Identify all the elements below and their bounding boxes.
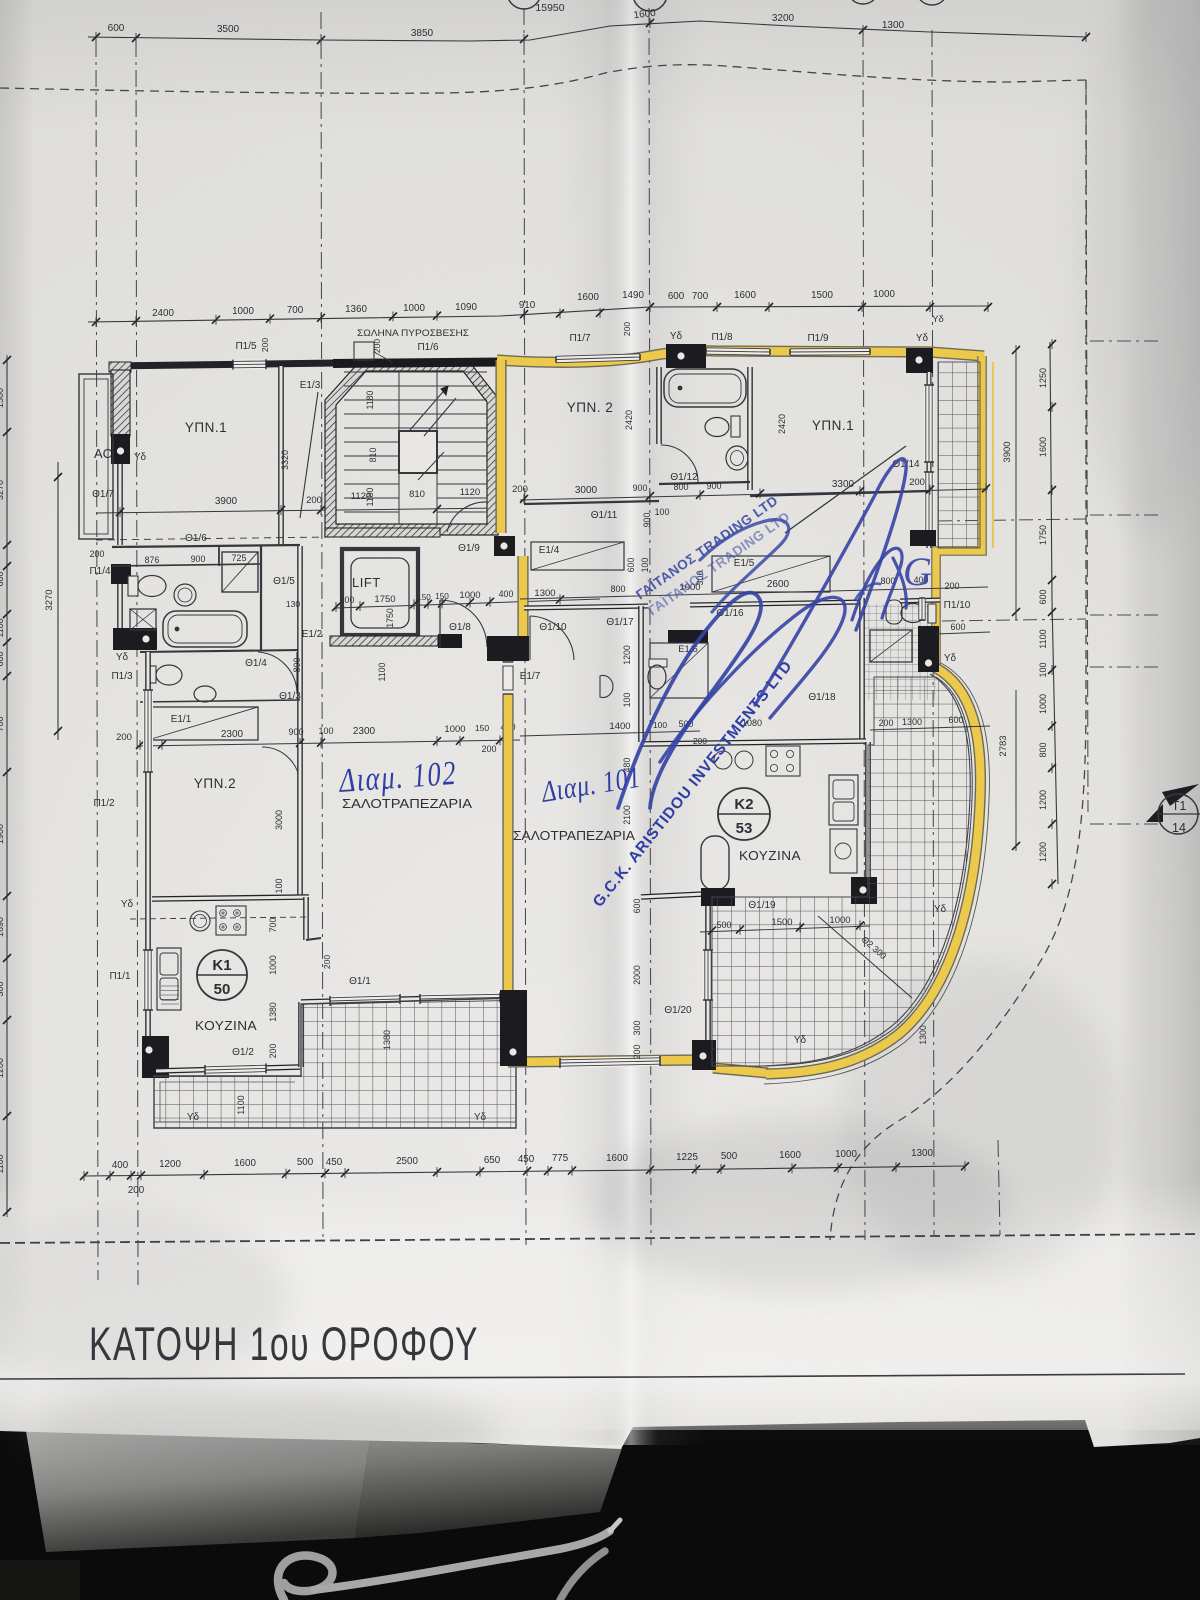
svg-text:1500: 1500	[811, 290, 833, 301]
svg-text:3200: 3200	[772, 13, 795, 24]
svg-text:1180: 1180	[365, 390, 375, 409]
svg-text:1000: 1000	[835, 1149, 857, 1160]
svg-text:200: 200	[879, 718, 894, 728]
svg-text:Υδ: Υδ	[932, 314, 944, 325]
svg-text:1100: 1100	[0, 1154, 5, 1173]
svg-text:1600: 1600	[734, 290, 756, 301]
svg-text:Θ1/2: Θ1/2	[232, 1047, 254, 1058]
svg-text:15950: 15950	[535, 2, 564, 14]
svg-text:200: 200	[622, 322, 632, 336]
svg-text:ΥΠΝ. 2: ΥΠΝ. 2	[567, 400, 614, 415]
svg-text:1100: 1100	[0, 618, 5, 637]
svg-text:1120: 1120	[460, 487, 480, 498]
svg-text:600: 600	[632, 899, 642, 914]
svg-text:1225: 1225	[676, 1152, 698, 1163]
svg-text:200: 200	[372, 339, 382, 353]
svg-text:1000: 1000	[232, 306, 254, 317]
svg-text:1600: 1600	[606, 1153, 628, 1164]
svg-text:2100: 2100	[622, 805, 632, 825]
svg-text:1600: 1600	[234, 1158, 256, 1169]
svg-text:3270: 3270	[0, 480, 5, 500]
svg-text:1500: 1500	[0, 388, 5, 408]
svg-text:3000: 3000	[575, 485, 598, 496]
svg-text:200: 200	[909, 477, 925, 488]
svg-text:Θ1/3: Θ1/3	[279, 691, 301, 702]
svg-text:Π1/3: Π1/3	[111, 671, 133, 682]
svg-text:1900: 1900	[0, 824, 5, 844]
svg-text:900: 900	[191, 554, 206, 564]
svg-text:Θ1/4: Θ1/4	[245, 658, 267, 669]
svg-text:3300: 3300	[832, 479, 855, 490]
svg-text:1500: 1500	[771, 917, 792, 928]
svg-text:2300: 2300	[221, 729, 244, 740]
svg-text:450: 450	[326, 1157, 343, 1168]
svg-text:53: 53	[736, 820, 753, 837]
svg-text:3500: 3500	[217, 24, 240, 35]
svg-text:150: 150	[417, 593, 431, 602]
svg-text:700: 700	[692, 291, 709, 302]
svg-text:Π1/2: Π1/2	[93, 798, 115, 809]
svg-text:600: 600	[0, 571, 5, 586]
svg-text:Θ1/20: Θ1/20	[664, 1005, 692, 1016]
svg-text:G: G	[903, 549, 932, 594]
svg-text:600: 600	[948, 715, 963, 725]
svg-text:Υδ: Υδ	[134, 452, 147, 463]
svg-text:800: 800	[673, 482, 688, 492]
svg-text:600: 600	[0, 651, 5, 666]
svg-text:1360: 1360	[345, 304, 367, 315]
svg-text:400: 400	[499, 589, 514, 599]
svg-text:450: 450	[518, 1154, 535, 1165]
svg-text:1200: 1200	[622, 645, 632, 665]
svg-text:200: 200	[268, 1044, 278, 1059]
svg-text:200: 200	[632, 1045, 642, 1060]
svg-text:Υδ: Υδ	[934, 904, 947, 915]
svg-text:1750: 1750	[374, 594, 395, 605]
svg-text:Θ1/9: Θ1/9	[458, 543, 480, 554]
svg-text:300: 300	[632, 1021, 642, 1036]
svg-text:1600: 1600	[577, 292, 599, 303]
svg-text:Π1/6: Π1/6	[417, 342, 439, 353]
svg-text:600: 600	[1038, 589, 1048, 604]
svg-text:150: 150	[475, 723, 490, 733]
svg-text:200: 200	[128, 1185, 145, 1196]
svg-text:ΚΟΥΖΙΝΑ: ΚΟΥΖΙΝΑ	[195, 1018, 257, 1033]
svg-text:1000: 1000	[829, 915, 850, 926]
svg-text:700: 700	[0, 716, 5, 731]
svg-text:ΚΟΥΖΙΝΑ: ΚΟΥΖΙΝΑ	[739, 848, 801, 863]
svg-text:3320: 3320	[280, 450, 290, 470]
svg-text:1100: 1100	[377, 662, 387, 681]
svg-text:ΥΠΝ.1: ΥΠΝ.1	[812, 418, 854, 433]
svg-text:650: 650	[484, 1155, 501, 1166]
svg-text:Τ1: Τ1	[1172, 799, 1187, 813]
svg-text:800: 800	[1038, 742, 1048, 757]
svg-text:Υδ: Υδ	[474, 1112, 487, 1123]
svg-text:Π1/8: Π1/8	[711, 332, 733, 343]
svg-text:1300: 1300	[911, 1148, 933, 1159]
svg-text:Κ1: Κ1	[212, 957, 231, 974]
svg-text:2600: 2600	[767, 579, 790, 590]
svg-text:500: 500	[716, 920, 731, 930]
svg-text:Υδ: Υδ	[944, 653, 957, 664]
svg-text:200: 200	[693, 736, 707, 746]
svg-text:500: 500	[721, 1151, 738, 1162]
svg-text:700: 700	[268, 918, 278, 933]
svg-text:400: 400	[112, 1160, 129, 1171]
svg-text:200: 200	[944, 581, 959, 591]
svg-text:775: 775	[552, 1153, 569, 1164]
svg-text:700: 700	[287, 305, 304, 316]
svg-text:200: 200	[90, 549, 105, 559]
svg-text:Π1/1: Π1/1	[109, 971, 131, 982]
svg-text:1180: 1180	[365, 487, 375, 506]
svg-text:1250: 1250	[1038, 368, 1048, 388]
svg-text:200: 200	[306, 495, 322, 506]
svg-text:200: 200	[116, 732, 132, 743]
svg-text:200: 200	[322, 955, 332, 969]
svg-text:1750: 1750	[1038, 525, 1048, 545]
svg-text:14: 14	[1172, 821, 1186, 835]
svg-text:900: 900	[642, 513, 652, 528]
svg-text:2420: 2420	[777, 414, 787, 434]
svg-text:1600: 1600	[779, 1150, 801, 1161]
svg-text:Υδ: Υδ	[670, 331, 683, 342]
svg-text:3900: 3900	[215, 496, 238, 507]
svg-text:2420: 2420	[624, 410, 634, 430]
svg-text:Υδ: Υδ	[916, 333, 929, 344]
svg-text:ΚΑΤΟΨΗ 1ου ΟΡΟΦΟΥ: ΚΑΤΟΨΗ 1ου ΟΡΟΦΟΥ	[89, 1317, 479, 1370]
svg-text:1090: 1090	[455, 302, 477, 313]
svg-text:Θ1/19: Θ1/19	[748, 900, 776, 911]
svg-text:3000: 3000	[274, 810, 284, 830]
svg-text:800: 800	[610, 584, 625, 594]
svg-text:Π1/4: Π1/4	[89, 566, 111, 577]
svg-text:600: 600	[668, 291, 685, 302]
svg-text:Ε1/3: Ε1/3	[300, 380, 321, 391]
svg-text:1380: 1380	[268, 1002, 278, 1022]
svg-text:Ε1/4: Ε1/4	[539, 545, 560, 556]
svg-text:Θ1/18: Θ1/18	[808, 692, 836, 703]
svg-text:ΣΩΛΗΝΑ ΠΥΡΟΣΒΕΣΗΣ: ΣΩΛΗΝΑ ΠΥΡΟΣΒΕΣΗΣ	[357, 328, 469, 338]
svg-text:2500: 2500	[396, 1156, 418, 1167]
svg-text:50: 50	[214, 981, 231, 998]
svg-text:200: 200	[512, 484, 528, 495]
svg-text:1200: 1200	[0, 1058, 5, 1078]
svg-text:910: 910	[519, 300, 536, 311]
svg-text:1000: 1000	[873, 289, 895, 300]
svg-text:AC: AC	[94, 446, 112, 461]
svg-text:Ε1/7: Ε1/7	[520, 671, 541, 682]
svg-text:1000: 1000	[459, 590, 480, 601]
svg-text:Π1/7: Π1/7	[569, 333, 591, 344]
svg-text:Θ1/5: Θ1/5	[273, 576, 295, 587]
svg-text:Θ1/1: Θ1/1	[349, 976, 371, 987]
svg-text:Υδ: Υδ	[121, 899, 134, 910]
svg-text:Ε1/2: Ε1/2	[302, 629, 323, 640]
svg-text:3270: 3270	[44, 589, 55, 610]
svg-text:1490: 1490	[622, 290, 644, 301]
svg-text:Θ1/11: Θ1/11	[591, 510, 618, 521]
svg-text:200: 200	[260, 338, 270, 352]
svg-text:1690: 1690	[0, 917, 5, 937]
svg-text:1300: 1300	[918, 1025, 928, 1045]
svg-text:1200: 1200	[159, 1159, 181, 1170]
svg-text:3900: 3900	[1002, 441, 1013, 462]
svg-text:ΥΠΝ.2: ΥΠΝ.2	[194, 776, 236, 791]
svg-text:1000: 1000	[268, 955, 278, 975]
svg-text:Θ1/8: Θ1/8	[449, 622, 471, 633]
svg-text:810: 810	[409, 489, 425, 500]
svg-text:600: 600	[108, 23, 125, 34]
svg-text:Υδ: Υδ	[187, 1112, 200, 1123]
svg-text:1300: 1300	[902, 717, 922, 727]
svg-text:900: 900	[633, 483, 648, 493]
svg-text:1100: 1100	[1038, 629, 1048, 648]
svg-text:Ε1/1: Ε1/1	[171, 714, 192, 725]
svg-text:1600: 1600	[1038, 437, 1048, 457]
svg-text:Θ1/17: Θ1/17	[606, 617, 634, 628]
svg-text:100: 100	[622, 693, 632, 708]
svg-text:1000: 1000	[1038, 694, 1048, 714]
svg-text:3850: 3850	[411, 28, 434, 39]
svg-text:2300: 2300	[353, 726, 376, 737]
svg-text:Θ1/7: Θ1/7	[92, 489, 114, 500]
svg-text:Κ2: Κ2	[734, 796, 753, 813]
svg-text:600: 600	[626, 558, 636, 573]
svg-text:LIFT: LIFT	[352, 575, 381, 590]
svg-text:1000: 1000	[444, 724, 465, 735]
svg-text:1200: 1200	[1038, 790, 1048, 810]
svg-text:200: 200	[481, 744, 496, 754]
svg-text:100: 100	[318, 726, 333, 736]
svg-text:600: 600	[950, 622, 965, 632]
svg-text:500: 500	[297, 1157, 314, 1168]
svg-text:Π1/9: Π1/9	[807, 333, 829, 344]
svg-text:800: 800	[292, 658, 302, 673]
svg-text:2783: 2783	[998, 735, 1009, 756]
svg-text:1400: 1400	[609, 721, 630, 732]
svg-text:810: 810	[368, 448, 378, 463]
svg-text:ΣΑΛΟΤΡΑΠΕΖΑΡΙΑ: ΣΑΛΟΤΡΑΠΕΖΑΡΙΑ	[513, 829, 636, 843]
svg-text:876: 876	[145, 555, 160, 565]
svg-text:1000: 1000	[403, 303, 425, 314]
svg-text:100: 100	[640, 558, 650, 573]
svg-text:Π1/5: Π1/5	[235, 341, 257, 352]
svg-text:900: 900	[288, 727, 303, 737]
svg-text:100: 100	[655, 507, 670, 517]
svg-text:900: 900	[706, 481, 721, 491]
svg-text:ΥΠΝ.1: ΥΠΝ.1	[185, 420, 227, 435]
svg-text:1300: 1300	[882, 20, 905, 31]
svg-text:300: 300	[0, 981, 5, 996]
svg-text:Υδ: Υδ	[794, 1035, 807, 1046]
svg-text:1200: 1200	[1038, 842, 1048, 862]
svg-text:1300: 1300	[534, 588, 555, 599]
svg-text:Π1/10: Π1/10	[944, 600, 971, 611]
svg-text:100: 100	[274, 878, 284, 893]
svg-text:2400: 2400	[152, 308, 174, 319]
svg-text:130: 130	[286, 599, 300, 609]
svg-text:100: 100	[653, 720, 667, 730]
svg-text:Υδ: Υδ	[116, 652, 129, 663]
svg-text:1750: 1750	[385, 608, 395, 628]
svg-text:725: 725	[232, 553, 247, 563]
svg-text:100: 100	[1038, 662, 1048, 677]
svg-text:2000: 2000	[632, 965, 642, 985]
svg-text:200: 200	[340, 595, 355, 605]
